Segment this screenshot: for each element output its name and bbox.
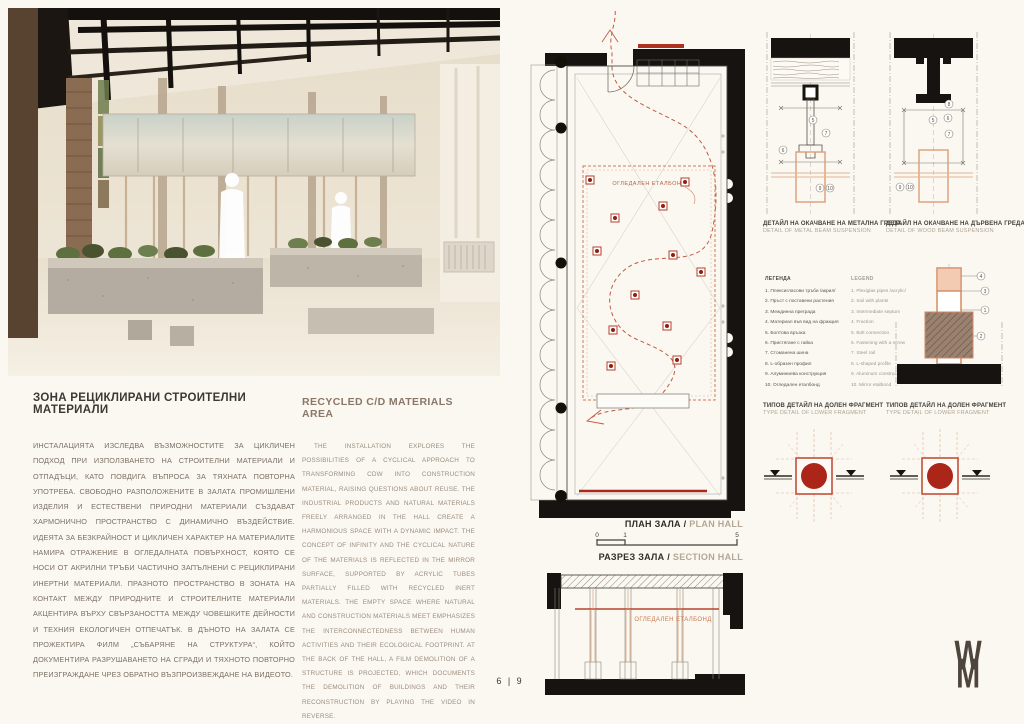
red-wall-marker (638, 44, 684, 48)
callout-number: 7 (948, 132, 951, 138)
detail-title-en: TYPE DETAIL OF LOWER FRAGMENT (886, 410, 1024, 416)
callout-number: 10 (827, 186, 833, 192)
inner-wall-lines (567, 66, 727, 500)
english-text-column: RECYCLED C/D MATERIALS AREA THE INSTALLA… (302, 396, 475, 724)
wood-beam-detail-drawing: 8 5 6 7 9 10 (886, 30, 981, 223)
lower-fragment-drawing-right (884, 424, 996, 531)
plan-title-en: PLAN HALL (689, 519, 743, 529)
section-walls (545, 573, 745, 695)
legend-item: 5. Болтова връзка (765, 329, 835, 339)
callout-number: 2 (980, 334, 983, 340)
legend-item: 4. Материал във вид на фракция (765, 318, 835, 328)
scale-bar: 0 1 5 (595, 530, 741, 553)
callout-number: 7 (825, 131, 828, 137)
callouts: 5 6 7 9 10 (779, 116, 834, 192)
tube-base-detail-drawing: 4 3 1 2 (893, 264, 1005, 395)
entry-arrow-icon (602, 30, 618, 42)
section-title-en: SECTION HALL (673, 552, 743, 562)
scalloped-niches (531, 65, 557, 500)
callout-number: 6 (947, 116, 950, 122)
scale-tick-0: 0 (595, 532, 599, 539)
legend-list-bg: 1. Плексигласови тръби /акрил/ 2. Пръст … (765, 287, 835, 391)
studio-logo: W M (938, 630, 996, 674)
callout-number: 5 (812, 118, 815, 124)
tube-circle (801, 463, 827, 489)
section-title-bg: РАЗРЕЗ ЗАЛА (599, 552, 665, 562)
plan-mirror-label: ОГЛЕДАЛЕН ЕТАЛБОНД (612, 181, 685, 187)
section-caption: РАЗРЕЗ ЗАЛА / SECTION HALL (515, 552, 743, 562)
lower-fragment-title-right: ТИПОВ ДЕТАЙЛ НА ДОЛЕН ФРАГМЕНТ TYPE DETA… (886, 403, 1024, 416)
legend-item: 7. Стоманена шина (765, 349, 835, 359)
legend-item: 3. Междинна преграда (765, 308, 835, 318)
tube-markers (586, 176, 705, 370)
bench-rectangle (597, 394, 689, 408)
legend-item: 1. Плексигласови тръби /акрил/ (765, 287, 835, 297)
section-title-bg: ЗОНА РЕЦИКЛИРАНИ СТРОИТЕЛНИ МАТЕРИАЛИ (33, 392, 295, 416)
hollow-section-beam (804, 86, 817, 99)
concrete-slab (894, 38, 973, 58)
callout-number: 1 (984, 308, 987, 314)
section-columns (555, 588, 719, 679)
callout-number: 8 (948, 102, 951, 108)
mirror-panel (103, 114, 415, 176)
legend-column-bg: ЛЕГЕНДА 1. Плексигласови тръби /акрил/ 2… (765, 276, 835, 391)
legend-item: 2. Пръст с поставени растения (765, 297, 835, 307)
section-title-en: RECYCLED C/D MATERIALS AREA (302, 396, 475, 420)
caption-separator: / (667, 552, 670, 562)
detail-title-bg: ТИПОВ ДЕТАЙЛ НА ДОЛЕН ФРАГМЕНТ (886, 403, 1024, 409)
tube-circle (927, 463, 953, 489)
legend-item: 8. L-образен профил (765, 360, 835, 370)
plan-walls (539, 49, 745, 518)
soil-box (925, 312, 973, 358)
callout-number: 5 (932, 118, 935, 124)
detail-title-bg: ДЕТАЙЛ НА ОКАЧВАНЕ НА ДЪРВЕНА ГРЕДА (886, 221, 1024, 227)
detail-title-en: DETAIL OF WOOD BEAM SUSPENSION (886, 228, 1024, 234)
callout-number: 9 (819, 186, 822, 192)
wood-grain-band (771, 58, 850, 80)
callout-number: 4 (980, 274, 983, 280)
floor-slab (897, 364, 1001, 384)
legend-item: 6. Пристягане с гайка (765, 339, 835, 349)
concrete-slab (771, 38, 850, 58)
bulgarian-text-column: ЗОНА РЕЦИКЛИРАНИ СТРОИТЕЛНИ МАТЕРИАЛИ ИН… (33, 392, 295, 683)
lower-fragment-drawing-left (758, 424, 870, 531)
caption-separator: / (684, 519, 687, 529)
scale-tick-1: 1 (623, 532, 627, 539)
section-mirror-label: ОГЛЕДАЛЕН ЕТАЛБОНД (634, 617, 711, 623)
callout-number: 10 (907, 185, 913, 191)
body-text-en: THE INSTALLATION EXPLORES THE POSSIBILIT… (302, 440, 475, 724)
plan-caption: ПЛАН ЗАЛА / PLAN HALL (515, 519, 743, 529)
interior-render-image (8, 8, 500, 376)
legend-title-bg: ЛЕГЕНДА (765, 276, 835, 282)
scale-tick-5: 5 (735, 532, 739, 539)
path-arrowhead-icon (587, 410, 604, 424)
right-wall (440, 64, 500, 302)
visitor-path-dashed (591, 8, 716, 418)
plan-title-bg: ПЛАН ЗАЛА (625, 519, 681, 529)
callout-number: 3 (984, 289, 987, 295)
section-mirror (575, 588, 719, 662)
scale-bar-line (597, 539, 737, 545)
interior-render-svg (8, 8, 500, 376)
legend-item: 9. Алуминиева конструкция (765, 370, 835, 380)
callout-number: 6 (782, 148, 785, 154)
body-text-bg: ИНСТАЛАЦИЯТА ИЗСЛЕДВА ВЪЗМОЖНОСТИТЕ ЗА Ц… (33, 438, 295, 683)
presentation-board: ЗОНА РЕЦИКЛИРАНИ СТРОИТЕЛНИ МАТЕРИАЛИ ИН… (0, 0, 1024, 724)
section-hall-drawing: ОГЛЕДАЛЕН ЕТАЛБОНД (545, 567, 745, 700)
radiator (444, 242, 494, 272)
construction-lines (577, 78, 720, 496)
legend-item: 10. Огледален еталбонд (765, 381, 835, 391)
label-leader-line (685, 187, 695, 204)
fraction-fill (938, 269, 960, 291)
plan-hall-drawing: ОГЛЕДАЛЕН ЕТАЛБОНД (515, 8, 745, 525)
callouts: 4 3 1 2 (977, 272, 989, 340)
wood-detail-title: ДЕТАЙЛ НА ОКАЧВАНЕ НА ДЪРВЕНА ГРЕДА DETA… (886, 221, 1024, 234)
legend-block: ЛЕГЕНДА 1. Плексигласови тръби /акрил/ 2… (765, 276, 909, 391)
i-beam (916, 58, 951, 103)
metal-beam-detail-drawing: 5 6 7 9 10 (763, 30, 858, 223)
callout-number: 9 (899, 185, 902, 191)
page-number: 6 | 9 (468, 676, 552, 686)
